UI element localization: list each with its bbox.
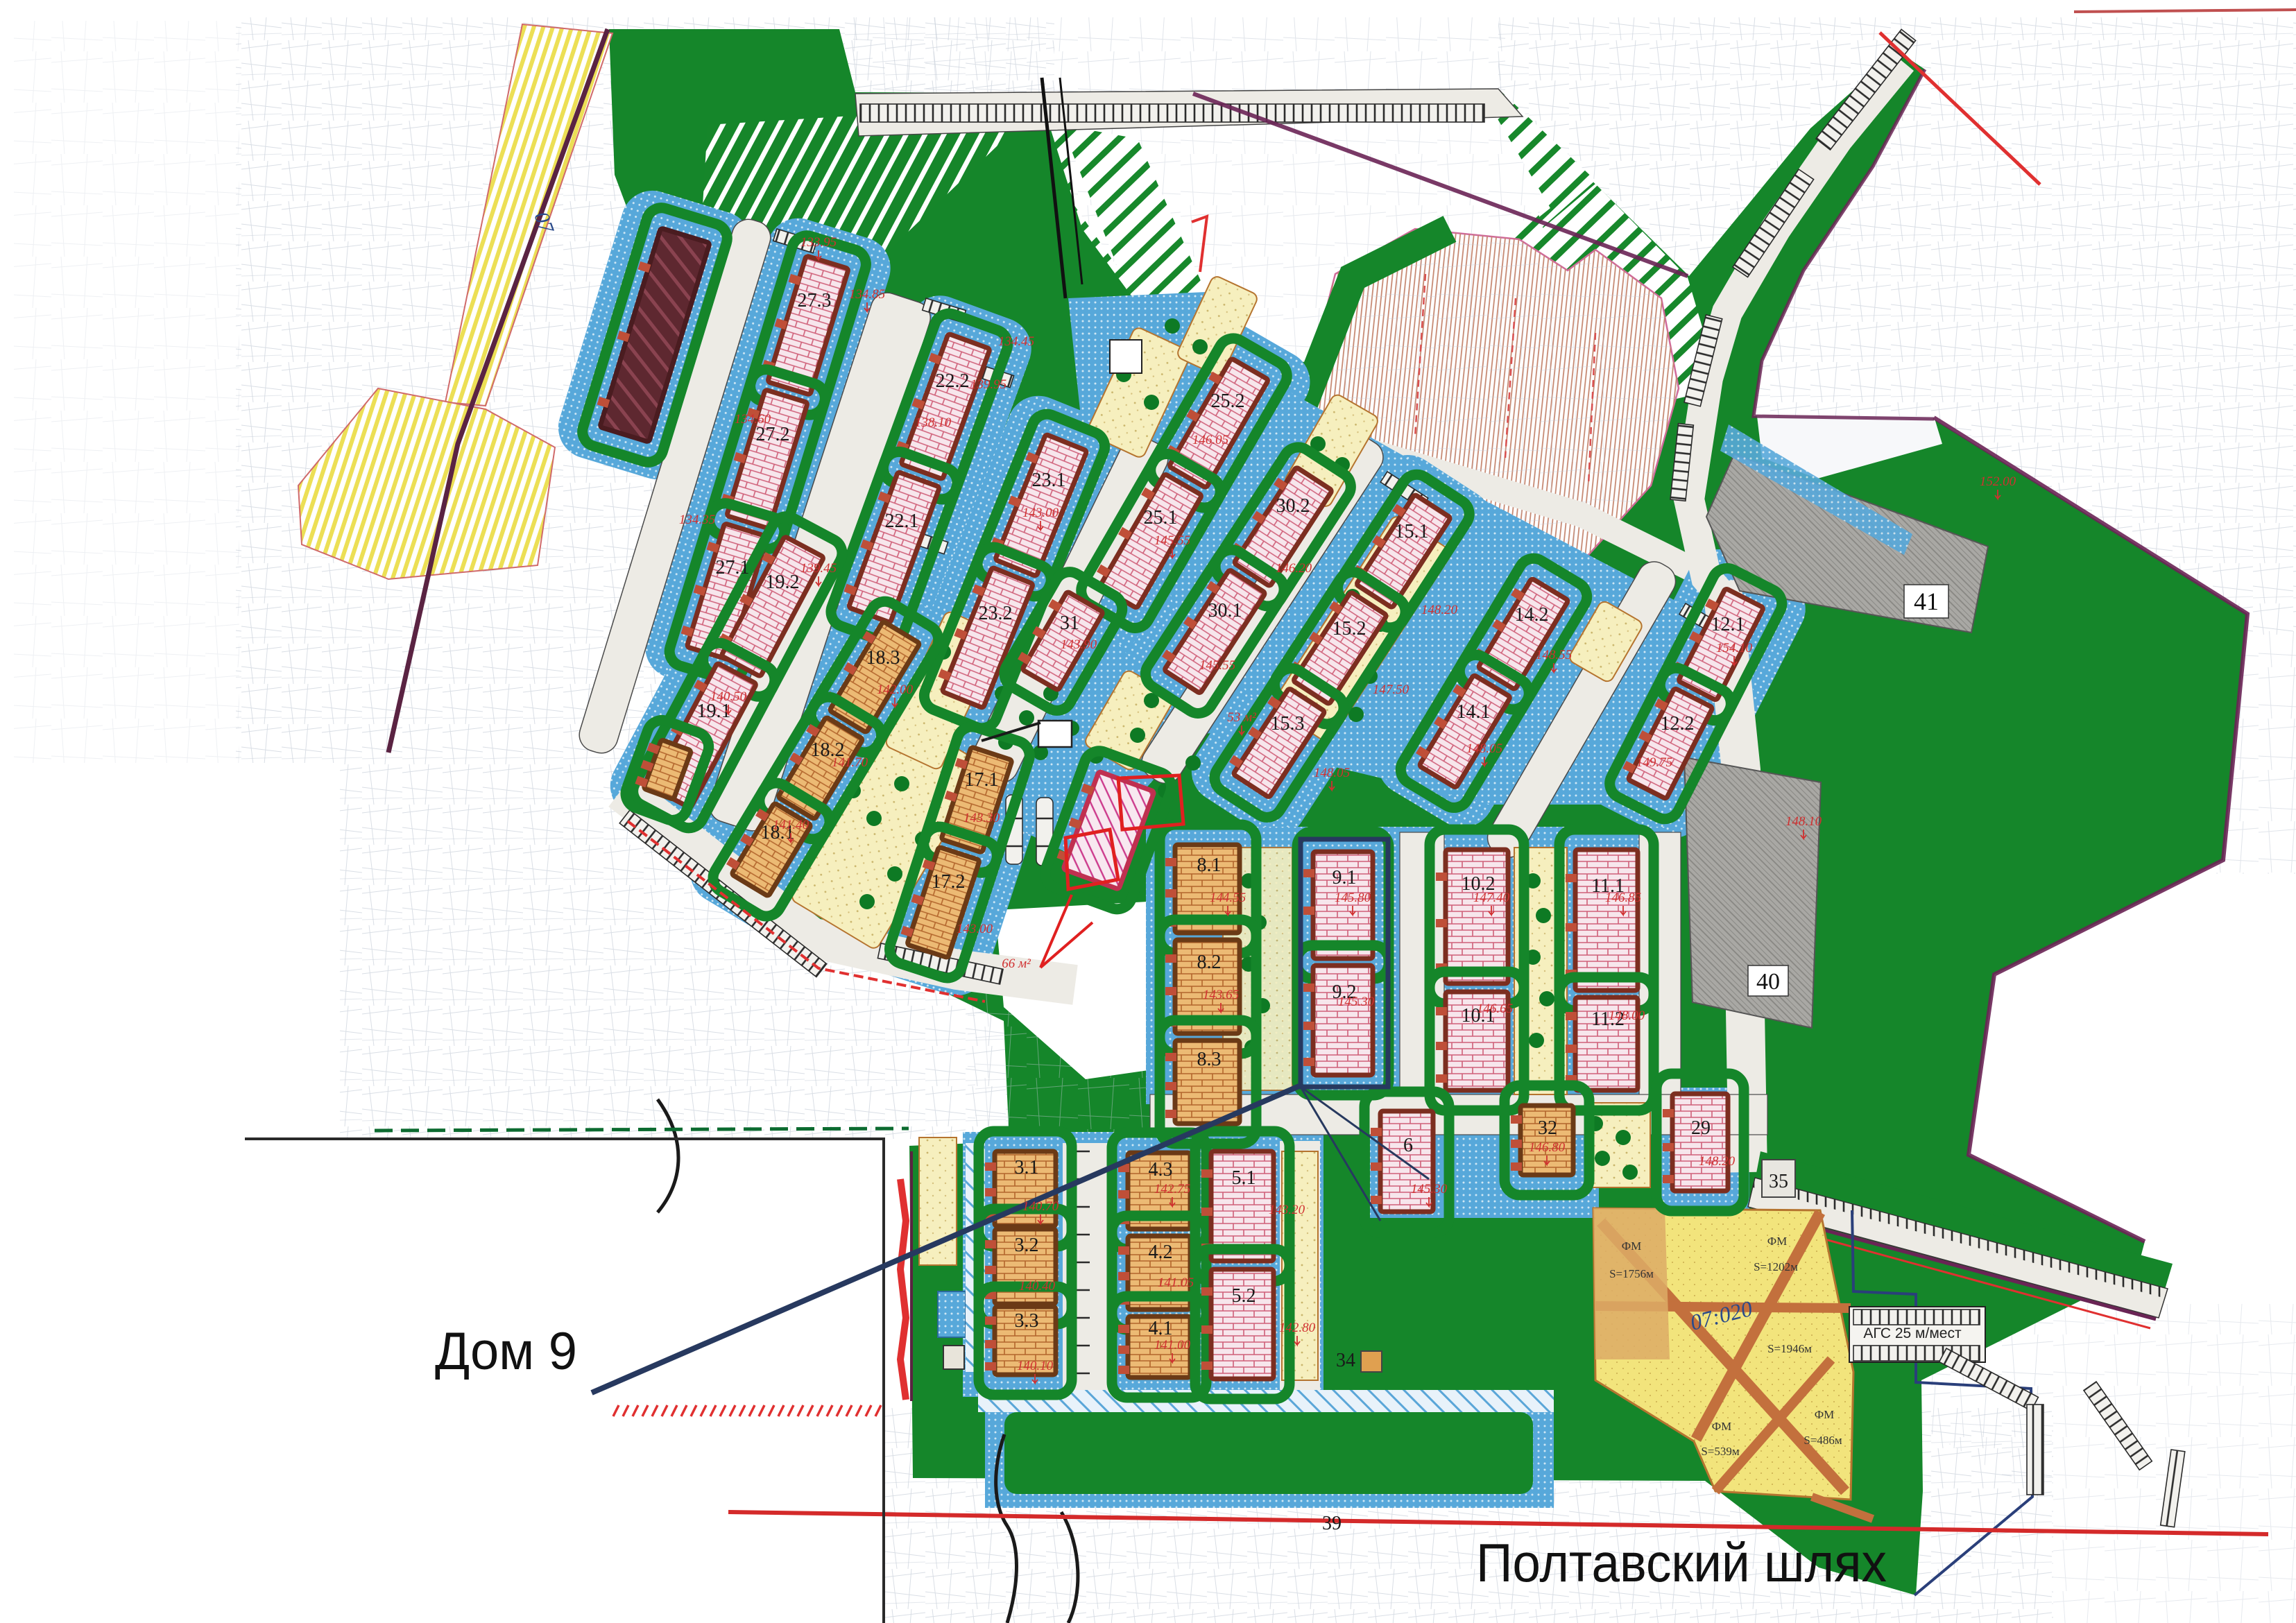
- svg-text:148.10: 148.10: [1785, 814, 1822, 829]
- svg-text:66 м²: 66 м²: [1002, 956, 1031, 971]
- svg-text:32: 32: [1538, 1117, 1557, 1139]
- svg-text:152.00: 152.00: [1980, 474, 2016, 489]
- svg-text:146.85: 146.85: [1605, 891, 1641, 905]
- svg-text:134.45: 134.45: [998, 334, 1034, 349]
- svg-text:3.1: 3.1: [1015, 1157, 1039, 1178]
- svg-text:141.70: 141.70: [832, 755, 868, 770]
- svg-text:143.00: 143.00: [957, 922, 993, 936]
- svg-text:138.10: 138.10: [915, 415, 952, 430]
- svg-text:6: 6: [1403, 1135, 1413, 1156]
- svg-text:146.20: 146.20: [1276, 561, 1312, 576]
- svg-text:143.90: 143.90: [1061, 637, 1097, 652]
- svg-text:40: 40: [1756, 969, 1780, 995]
- svg-text:25.1: 25.1: [1144, 507, 1178, 529]
- svg-text:30.2: 30.2: [1276, 495, 1310, 517]
- svg-text:147.40: 147.40: [1473, 891, 1510, 905]
- svg-text:39: 39: [1322, 1513, 1342, 1534]
- svg-text:S=1756м: S=1756м: [1609, 1267, 1654, 1280]
- svg-text:14.2: 14.2: [1515, 604, 1549, 626]
- svg-text:27.2: 27.2: [756, 424, 790, 445]
- svg-text:22.2: 22.2: [936, 370, 970, 392]
- svg-text:8.1: 8.1: [1197, 855, 1222, 876]
- svg-text:29: 29: [1691, 1117, 1711, 1139]
- svg-text:S=486м: S=486м: [1804, 1434, 1842, 1447]
- svg-text:148.20: 148.20: [1699, 1154, 1736, 1169]
- svg-text:14.1: 14.1: [1457, 701, 1491, 723]
- svg-text:27.3: 27.3: [798, 290, 832, 311]
- svg-text:4.2: 4.2: [1149, 1242, 1173, 1263]
- svg-text:ФМ: ФМ: [1815, 1408, 1835, 1421]
- svg-text:146.80: 146.80: [1529, 1140, 1566, 1155]
- svg-text:143.65: 143.65: [1203, 988, 1239, 1002]
- svg-text:134.85: 134.85: [849, 287, 885, 302]
- svg-text:17.1: 17.1: [965, 769, 999, 791]
- svg-text:5.2: 5.2: [1232, 1285, 1256, 1307]
- svg-text:53 м²: 53 м²: [1227, 710, 1256, 725]
- svg-text:145.80: 145.80: [1335, 891, 1371, 905]
- svg-text:134.60: 134.60: [735, 412, 771, 427]
- svg-text:Полтавский шлях: Полтавский шлях: [1476, 1532, 1887, 1593]
- svg-text:148.05: 148.05: [1466, 741, 1502, 756]
- svg-text:30.1: 30.1: [1208, 600, 1242, 621]
- svg-text:12.1: 12.1: [1711, 614, 1745, 635]
- svg-text:141.05: 141.05: [1158, 1276, 1194, 1290]
- svg-text:4.1: 4.1: [1149, 1318, 1173, 1339]
- svg-text:35: 35: [1769, 1171, 1788, 1192]
- svg-text:ФМ: ФМ: [1712, 1420, 1732, 1433]
- svg-text:134.35: 134.35: [679, 513, 715, 527]
- svg-text:143.20: 143.20: [1269, 1203, 1305, 1217]
- svg-text:15.3: 15.3: [1271, 713, 1305, 735]
- svg-text:145.55: 145.55: [1154, 533, 1190, 548]
- svg-text:146.65: 146.65: [1477, 1002, 1513, 1016]
- svg-text:145.30: 145.30: [1411, 1182, 1448, 1196]
- svg-text:148.20: 148.20: [1421, 603, 1458, 617]
- svg-text:31: 31: [1060, 612, 1079, 634]
- svg-text:142.00: 142.00: [877, 682, 914, 697]
- svg-text:41: 41: [1914, 587, 1939, 615]
- svg-text:148.00: 148.00: [1609, 1008, 1645, 1023]
- svg-text:34: 34: [1336, 1350, 1355, 1371]
- svg-text:145.55: 145.55: [1199, 658, 1235, 673]
- svg-text:15.2: 15.2: [1333, 618, 1367, 639]
- svg-text:140.10: 140.10: [1017, 1359, 1054, 1373]
- svg-text:141.00: 141.00: [1154, 1338, 1191, 1352]
- svg-text:148.55: 148.55: [1536, 648, 1572, 662]
- svg-text:148.05: 148.05: [1314, 766, 1350, 780]
- svg-text:146.05: 146.05: [1192, 433, 1228, 447]
- svg-text:S=1202м: S=1202м: [1754, 1260, 1798, 1273]
- svg-text:18.3: 18.3: [866, 647, 900, 669]
- svg-text:3.2: 3.2: [1015, 1235, 1039, 1256]
- svg-text:12.2: 12.2: [1661, 713, 1695, 735]
- svg-text:145.30: 145.30: [1338, 995, 1375, 1009]
- svg-text:9.1: 9.1: [1333, 867, 1357, 888]
- svg-text:Дом 9: Дом 9: [435, 1322, 577, 1381]
- svg-text:140.50: 140.50: [710, 689, 747, 704]
- svg-text:ФМ: ФМ: [1767, 1235, 1788, 1248]
- svg-text:142.80: 142.80: [1279, 1321, 1316, 1335]
- svg-text:5.1: 5.1: [1232, 1167, 1256, 1189]
- svg-text:142.75: 142.75: [1154, 1182, 1190, 1196]
- svg-text:27.1: 27.1: [716, 557, 750, 578]
- svg-text:141.40: 141.40: [773, 818, 809, 832]
- svg-text:143.30: 143.30: [963, 811, 1000, 825]
- svg-text:22.1: 22.1: [885, 510, 919, 532]
- svg-text:S=1946м: S=1946м: [1767, 1342, 1812, 1355]
- svg-text:144.55: 144.55: [1210, 891, 1246, 905]
- svg-text:4.3: 4.3: [1149, 1159, 1173, 1180]
- svg-text:3.3: 3.3: [1015, 1310, 1039, 1332]
- svg-text:23.1: 23.1: [1032, 470, 1066, 491]
- svg-text:139.95: 139.95: [970, 377, 1006, 392]
- svg-text:139.45: 139.45: [800, 561, 837, 576]
- svg-text:140.70: 140.70: [1022, 1199, 1059, 1214]
- svg-text:15.1: 15.1: [1395, 521, 1429, 542]
- svg-text:АГС 25 м/мест: АГС 25 м/мест: [1863, 1325, 1962, 1341]
- svg-text:19.2: 19.2: [766, 572, 800, 593]
- svg-text:23.2: 23.2: [979, 603, 1013, 624]
- svg-text:133.95: 133.95: [800, 235, 837, 250]
- svg-text:8.2: 8.2: [1197, 952, 1222, 973]
- svg-text:S=539м: S=539м: [1701, 1445, 1740, 1458]
- svg-text:143.00: 143.00: [1022, 506, 1059, 520]
- svg-text:17.2: 17.2: [932, 871, 966, 893]
- svg-text:147.50: 147.50: [1373, 682, 1410, 697]
- svg-text:25.2: 25.2: [1211, 390, 1245, 412]
- svg-text:140.40: 140.40: [1019, 1279, 1056, 1294]
- svg-text:154.10: 154.10: [1716, 641, 1753, 655]
- svg-text:149.75: 149.75: [1636, 755, 1672, 770]
- svg-text:8.3: 8.3: [1197, 1049, 1222, 1070]
- svg-text:ФМ: ФМ: [1622, 1239, 1642, 1253]
